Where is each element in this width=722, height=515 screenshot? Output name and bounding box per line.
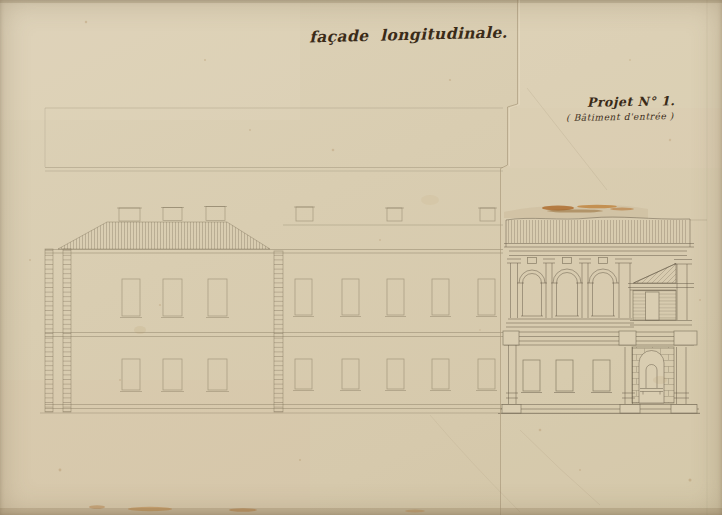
project-number-label: Projet N° 1.	[587, 93, 675, 110]
cornice-dentils	[508, 220, 688, 243]
project-subtitle-label: ( Bâtiment d'entrée )	[566, 111, 674, 123]
archival-drawing-photo: façade longitudinale. Projet N° 1. ( Bât…	[0, 0, 722, 515]
paper-texture	[0, 0, 722, 515]
facade-drawing	[0, 0, 722, 515]
roof-hatch	[58, 222, 270, 249]
